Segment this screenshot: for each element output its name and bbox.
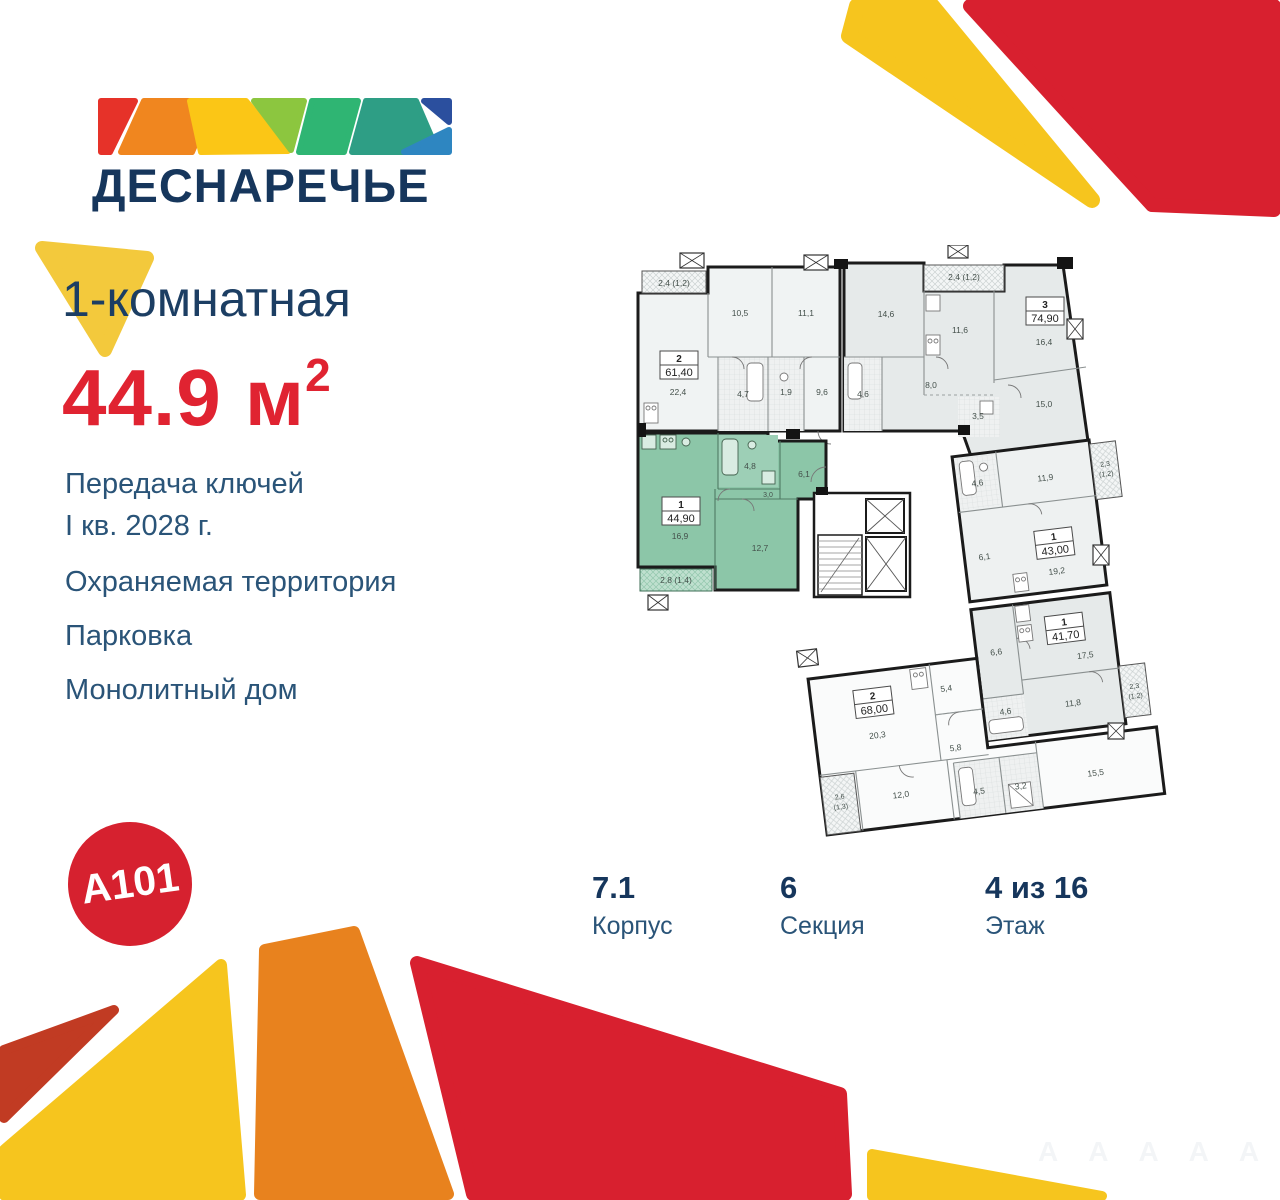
floor-value: 4 из 16 xyxy=(985,870,1088,906)
watermark-row: AAAAA xyxy=(1038,1136,1280,1168)
room-label: 2,3 xyxy=(1129,683,1140,691)
room-label: 17,5 xyxy=(1076,649,1094,661)
building-label: Корпус xyxy=(592,912,673,941)
room-label: 22,4 xyxy=(670,387,687,397)
room-label: 10,5 xyxy=(732,308,749,318)
stat-floor: 4 из 16 Этаж xyxy=(985,870,1088,941)
feature-security: Охраняемая территория xyxy=(65,566,396,599)
room-label: 16,4 xyxy=(1036,337,1053,347)
building-value: 7.1 xyxy=(592,870,673,906)
room-label: 6,1 xyxy=(798,469,810,479)
feature-keys-line1: Передача ключей xyxy=(65,468,304,501)
unit-area: 44,90 xyxy=(667,513,695,525)
room-label: 4,7 xyxy=(737,389,749,399)
feature-construction: Монолитный дом xyxy=(65,674,298,707)
developer-logo-text: A101 xyxy=(65,852,194,916)
room-label: 12,7 xyxy=(752,543,769,553)
room-label: 4,8 xyxy=(744,461,756,471)
unit-2-rooms-61: 2,4 (1,2) 10,5 11,1 22,4 4,7 1,9 9,6 2 6… xyxy=(638,267,840,444)
area-superscript: 2 xyxy=(305,349,331,401)
room-label: 5,4 xyxy=(940,683,953,694)
room-label: 11,9 xyxy=(1037,472,1054,484)
room-label: 2,4 (1,2) xyxy=(948,272,980,282)
room-label: 3,0 xyxy=(763,492,773,499)
unit-area: 61,40 xyxy=(665,367,693,379)
rooms-type-heading: 1-комнатная xyxy=(62,270,351,328)
unit-1-room-41: 6,6 17,5 11,8 4,6 2,3 (1,2) 1 41,70 xyxy=(971,589,1152,740)
room-label: 12,0 xyxy=(892,789,910,801)
room-label: 4,5 xyxy=(973,785,986,796)
room-label: 19,2 xyxy=(1048,565,1066,577)
room-label: 2,6 xyxy=(835,794,846,802)
area-heading: 44.9 м2 xyxy=(62,348,331,444)
room-label: 2,8 (1,4) xyxy=(660,575,692,585)
room-label: 20,3 xyxy=(869,729,887,741)
room-label: 15,5 xyxy=(1087,767,1105,779)
floor-plan: 2,4 (1,2) 10,5 11,1 22,4 4,7 1,9 9,6 2 6… xyxy=(620,245,1180,845)
room-label: 15,0 xyxy=(1036,399,1053,409)
room-label: 1,9 xyxy=(780,387,792,397)
room-label: 9,6 xyxy=(816,387,828,397)
room-label: 3,2 xyxy=(1014,780,1027,791)
stat-building: 7.1 Корпус xyxy=(592,870,673,941)
room-label: 11,8 xyxy=(1064,697,1081,709)
area-value: 44.9 xyxy=(62,353,222,442)
feature-keys-line2: I кв. 2028 г. xyxy=(65,510,213,543)
stat-section: 6 Секция xyxy=(780,870,865,941)
section-value: 6 xyxy=(780,870,865,906)
room-label: 2,4 (1,2) xyxy=(658,278,690,288)
brand-logo-text: ДЕСНАРЕЧЬЕ xyxy=(92,158,512,213)
room-label: 6,1 xyxy=(978,551,991,562)
logo-shape-navy-blue xyxy=(424,101,449,122)
floor-label: Этаж xyxy=(985,912,1088,941)
unit-selected-1-room-44: 2,8 (1,4) 16,9 4,8 3,0 6,1 12,7 1 44,90 xyxy=(638,433,826,591)
room-label: 3,5 xyxy=(972,411,984,421)
room-label: 4,6 xyxy=(971,477,984,488)
stair-elevator-core xyxy=(814,493,910,597)
room-label: 14,6 xyxy=(878,309,895,319)
feature-parking: Парковка xyxy=(65,620,192,653)
room-label: 2,3 xyxy=(1100,461,1111,469)
room-label: 4,6 xyxy=(857,389,869,399)
room-label: 8,0 xyxy=(925,380,937,390)
room-label: 6,6 xyxy=(990,646,1003,657)
logo-shape-green xyxy=(299,101,358,152)
room-label: 16,9 xyxy=(672,531,689,541)
section-label: Секция xyxy=(780,912,865,941)
room-label: 11,6 xyxy=(952,325,968,335)
developer-logo: A101 xyxy=(68,822,192,946)
room-label: 5,8 xyxy=(949,742,962,753)
unit-area: 74,90 xyxy=(1031,313,1059,325)
unit-1-room-43: 4,6 11,9 2,3 (1,2) 6,1 19,2 1 43,00 xyxy=(952,437,1133,602)
unit-type: 2 xyxy=(676,354,682,365)
room-label: 11,1 xyxy=(798,308,814,318)
room-label: 4,6 xyxy=(999,706,1012,717)
area-unit: м xyxy=(222,353,305,442)
unit-type: 1 xyxy=(678,500,684,511)
unit-type: 3 xyxy=(1042,300,1048,311)
